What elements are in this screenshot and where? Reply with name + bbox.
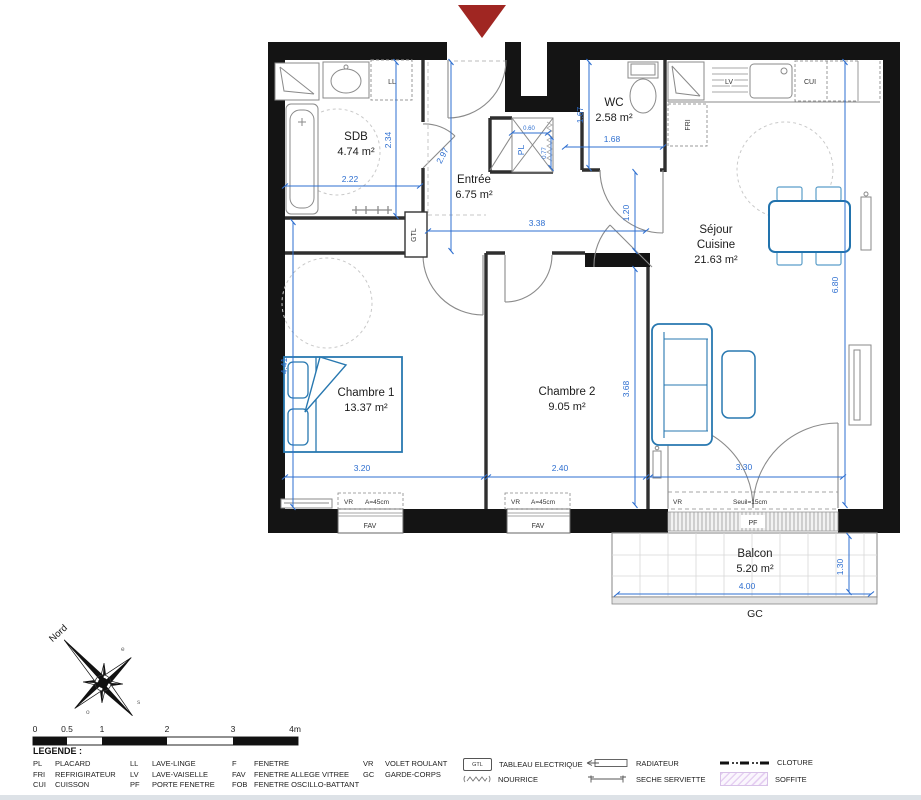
svg-text:0.5: 0.5 — [61, 724, 73, 734]
legend-symbol-seche-serviette: SECHE SERVIETTE — [585, 774, 705, 784]
svg-text:GTL: GTL — [411, 228, 418, 242]
nourrice-icon — [463, 774, 491, 784]
svg-text:2.22: 2.22 — [342, 174, 359, 184]
svg-text:0.77: 0.77 — [542, 147, 548, 159]
svg-text:CUI: CUI — [804, 79, 816, 86]
svg-text:21.63 m²: 21.63 m² — [694, 254, 738, 266]
svg-text:SDB: SDB — [344, 131, 368, 143]
svg-text:LL: LL — [388, 79, 396, 86]
svg-text:FRI: FRI — [685, 119, 692, 130]
legend-item: PLPLACARD — [33, 759, 116, 770]
kitchen-counter — [668, 62, 880, 102]
legend: LEGENDE : PLPLACARD FRIREFRIGIRATEUR CUI… — [0, 744, 921, 796]
svg-text:13.37 m²: 13.37 m² — [344, 402, 388, 414]
svg-text:FAV: FAV — [364, 523, 377, 530]
nord-label: Nord — [47, 623, 70, 645]
svg-text:9.05 m²: 9.05 m² — [548, 401, 586, 413]
svg-text:1.30: 1.30 — [835, 558, 845, 575]
svg-text:PL: PL — [516, 145, 526, 156]
svg-text:4.41: 4.41 — [279, 357, 289, 374]
svg-text:4.00: 4.00 — [739, 581, 756, 591]
svg-text:2.97: 2.97 — [434, 146, 451, 166]
legend-item: LLLAVE-LINGE — [130, 759, 215, 770]
svg-text:3.38: 3.38 — [529, 218, 546, 228]
svg-text:Chambre 1: Chambre 1 — [338, 387, 395, 399]
sofa — [652, 324, 712, 445]
svg-text:0.60: 0.60 — [523, 126, 535, 132]
svg-text:1.67: 1.67 — [575, 106, 585, 123]
svg-text:4m: 4m — [289, 724, 301, 734]
duct-notch — [521, 42, 547, 96]
dining-table-set — [769, 187, 850, 265]
bathroom-fixtures — [275, 62, 392, 214]
svg-text:LV: LV — [725, 79, 733, 86]
gtl-icon: GTL — [463, 758, 492, 771]
svg-text:Entrée: Entrée — [457, 174, 491, 186]
legend-symbol-radiateur: RADIATEUR — [585, 758, 679, 768]
radiator-icon — [585, 758, 629, 768]
svg-text:5.20 m²: 5.20 m² — [736, 563, 774, 575]
svg-text:3.30: 3.30 — [736, 462, 753, 472]
legend-item: LVLAVE-VAISELLE — [130, 770, 215, 781]
svg-text:o: o — [86, 709, 90, 716]
svg-text:A=45cm: A=45cm — [531, 499, 555, 506]
svg-text:1: 1 — [100, 724, 105, 734]
svg-text:VR: VR — [673, 499, 682, 506]
svg-text:2.58 m²: 2.58 m² — [595, 112, 633, 124]
svg-text:PF: PF — [749, 520, 758, 527]
legend-item: FOBFENETRE OSCILLO-BATTANT — [232, 780, 359, 791]
svg-text:2.40: 2.40 — [552, 463, 569, 473]
svg-text:2.34: 2.34 — [383, 131, 393, 148]
legend-col-2: LLLAVE-LINGE LVLAVE-VAISELLE PFPORTE FEN… — [130, 759, 215, 791]
legend-item: PFPORTE FENETRE — [130, 780, 215, 791]
svg-text:Chambre 2: Chambre 2 — [539, 386, 596, 398]
legend-item: FAVFENETRE ALLEGE VITREE — [232, 770, 359, 781]
svg-text:VR: VR — [344, 499, 353, 506]
svg-text:Seuil=15cm: Seuil=15cm — [733, 499, 767, 506]
svg-text:6.75 m²: 6.75 m² — [455, 189, 493, 201]
legend-symbol-tableau: GTL TABLEAU ELECTRIQUE — [463, 758, 583, 771]
svg-text:A=45cm: A=45cm — [365, 499, 389, 506]
svg-text:FAV: FAV — [532, 523, 545, 530]
svg-text:4.74 m²: 4.74 m² — [337, 146, 375, 158]
svg-text:1.68: 1.68 — [604, 134, 621, 144]
svg-text:VR: VR — [511, 499, 520, 506]
legend-col-3: FFENETRE FAVFENETRE ALLEGE VITREE FOBFEN… — [232, 759, 359, 791]
coffee-table — [722, 351, 755, 418]
svg-text:6.80: 6.80 — [830, 276, 840, 293]
svg-text:GC: GC — [747, 608, 763, 620]
kitchen-appliance-slots — [668, 61, 880, 146]
svg-text:0: 0 — [33, 724, 38, 734]
svg-text:e: e — [121, 646, 125, 653]
page-bottom-strip — [0, 795, 921, 800]
svg-text:WC: WC — [604, 97, 623, 109]
legend-item: FFENETRE — [232, 759, 359, 770]
scale-bar: 0 0.5 1 2 3 4m — [33, 724, 301, 745]
legend-item: CUICUISSON — [33, 780, 116, 791]
floor-plan-page: 2.22 2.34 2.97 1.67 1.68 1.20 3.38 6.80 … — [0, 0, 921, 800]
svg-text:Balcon: Balcon — [737, 548, 772, 560]
legend-symbol-soffite: SOFFITE — [720, 772, 807, 786]
svg-text:2: 2 — [165, 724, 170, 734]
wc-fixtures — [628, 62, 658, 113]
legend-symbol-cloture: CLOTURE — [720, 758, 813, 767]
svg-text:1.20: 1.20 — [621, 204, 631, 221]
compass-rose: Nord e s o — [27, 604, 161, 741]
svg-text:3.20: 3.20 — [354, 463, 371, 473]
svg-text:3: 3 — [231, 724, 236, 734]
legend-symbol-nourrice: NOURRICE — [463, 774, 538, 784]
legend-item: GCGARDE-CORPS — [363, 770, 447, 781]
fence-line-icon — [720, 759, 770, 767]
soffite-swatch-icon — [720, 772, 768, 786]
svg-text:Séjour: Séjour — [699, 224, 732, 236]
svg-text:Cuisine: Cuisine — [697, 239, 735, 251]
legend-title: LEGENDE : — [33, 746, 82, 756]
legend-col-1: PLPLACARD FRIREFRIGIRATEUR CUICUISSON — [33, 759, 116, 791]
legend-item: FRIREFRIGIRATEUR — [33, 770, 116, 781]
svg-text:s: s — [137, 699, 141, 706]
entrance-arrow — [458, 5, 506, 38]
turning-circles — [282, 109, 833, 348]
floor-plan-drawing: 2.22 2.34 2.97 1.67 1.68 1.20 3.38 6.80 … — [0, 0, 921, 800]
towel-dryer-icon — [585, 774, 629, 784]
legend-col-4: VRVOLET ROULANT GCGARDE-CORPS — [363, 759, 447, 780]
svg-text:3.68: 3.68 — [621, 380, 631, 397]
legend-item: VRVOLET ROULANT — [363, 759, 447, 770]
